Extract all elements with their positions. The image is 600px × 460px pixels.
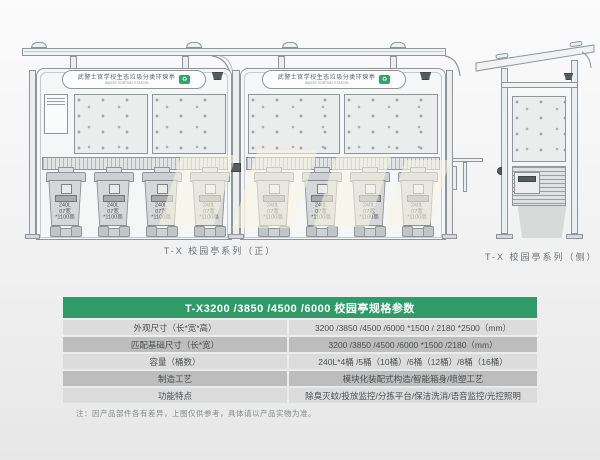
side-header-bar xyxy=(501,82,578,88)
side-view-drawing: T-X 校园亭系列（侧） xyxy=(470,0,600,270)
bin-wheel xyxy=(50,226,61,237)
spec-row-label: 制造工艺 xyxy=(63,371,287,386)
bin-wheel xyxy=(119,226,130,237)
bin-label: 240L07宽*1100高 xyxy=(96,203,131,221)
side-bin xyxy=(516,206,568,238)
bin-badge xyxy=(55,195,77,202)
spec-row-value: 3200 /3850 /4500 /6000 *1500 / 2180 *250… xyxy=(289,320,537,335)
spec-table: T-X3200 /3850 /4500 /6000 校园亭规格参数 外观尺寸（长… xyxy=(63,297,537,403)
spec-table-title: T-X3200 /3850 /4500 /6000 校园亭规格参数 xyxy=(63,297,537,318)
bin-wheel xyxy=(327,226,338,237)
bin-wheel xyxy=(98,226,109,237)
side-glass-panel xyxy=(512,96,566,162)
spec-row: 外观尺寸（长*宽*高）3200 /3850 /4500 /6000 *1500 … xyxy=(63,320,537,335)
bin-wheel xyxy=(402,226,413,237)
side-view-caption: T-X 校园亭系列（侧） xyxy=(485,250,595,263)
bin-badge xyxy=(103,195,125,202)
bin-wheel xyxy=(71,226,82,237)
spec-row-value: 3200 /3850 /4500 /6000 *1500 /2180（mm） xyxy=(289,337,537,352)
spec-row: 功能特点除臭灭蚊/投放监控/分拣平台/保洁洗消/语音监控/光控照明 xyxy=(63,388,537,403)
bin-label-line: *1100高 xyxy=(48,215,83,221)
side-hopper-slot xyxy=(518,176,536,182)
spec-row-label: 功能特点 xyxy=(63,388,287,403)
bin-sticker xyxy=(61,184,72,194)
bin-wheel xyxy=(306,226,317,237)
post-foot xyxy=(496,234,513,239)
bin-label-line: *1100高 xyxy=(96,215,131,221)
product-sheet: 武警士官学校生态垃圾分类环保亭 WASTE SORTING STATION ♻ … xyxy=(0,0,600,460)
bin-wheel xyxy=(146,226,157,237)
bin-wheel xyxy=(215,226,226,237)
side-knob xyxy=(497,167,502,175)
front-view-caption: T-X 校园亭系列（正） xyxy=(140,244,300,257)
bin-wheel xyxy=(375,226,386,237)
spec-row-value: 240L*4桶 /5桶（10桶）/6桶（12桶）/8桶（16桶） xyxy=(289,354,537,369)
spec-row-label: 容量（桶数） xyxy=(63,354,287,369)
spec-row-value: 模块化装配式构造/智能箱身/喷塑工艺 xyxy=(289,371,537,386)
bin-wheel xyxy=(167,226,178,237)
bin-label: 240L07宽*1100高 xyxy=(48,203,83,221)
spec-row-label: 外观尺寸（长*宽*高） xyxy=(63,320,287,335)
side-post-left xyxy=(501,68,508,234)
bin-wheel xyxy=(354,226,365,237)
waste-bin: 240L07宽*1100高 xyxy=(46,172,84,238)
spec-row-value: 除臭灭蚊/投放监控/分拣平台/保洁洗消/语音监控/光控照明 xyxy=(289,388,537,403)
bin-wheel xyxy=(194,226,205,237)
spec-table-rows: 外观尺寸（长*宽*高）3200 /3850 /4500 /6000 *1500 … xyxy=(63,320,537,403)
spec-note: 注：因产品部件各有差异，上图仅供参考，具体请以产品实物为准。 xyxy=(76,408,316,419)
spec-row: 容量（桶数）240L*4桶 /5桶（10桶）/6桶（12桶）/8桶（16桶） xyxy=(63,354,537,369)
bin-sticker xyxy=(157,184,168,194)
spec-row-label: 匹配基础尺寸（长*宽） xyxy=(63,337,287,352)
bin-wheel xyxy=(423,226,434,237)
waste-bin: 240L07宽*1100高 xyxy=(94,172,132,238)
spec-row: 匹配基础尺寸（长*宽）3200 /3850 /4500 /6000 *1500 … xyxy=(63,337,537,352)
spec-row: 制造工艺模块化装配式构造/智能箱身/喷塑工艺 xyxy=(63,371,537,386)
bin-sticker xyxy=(109,184,120,194)
post-foot xyxy=(566,234,583,239)
